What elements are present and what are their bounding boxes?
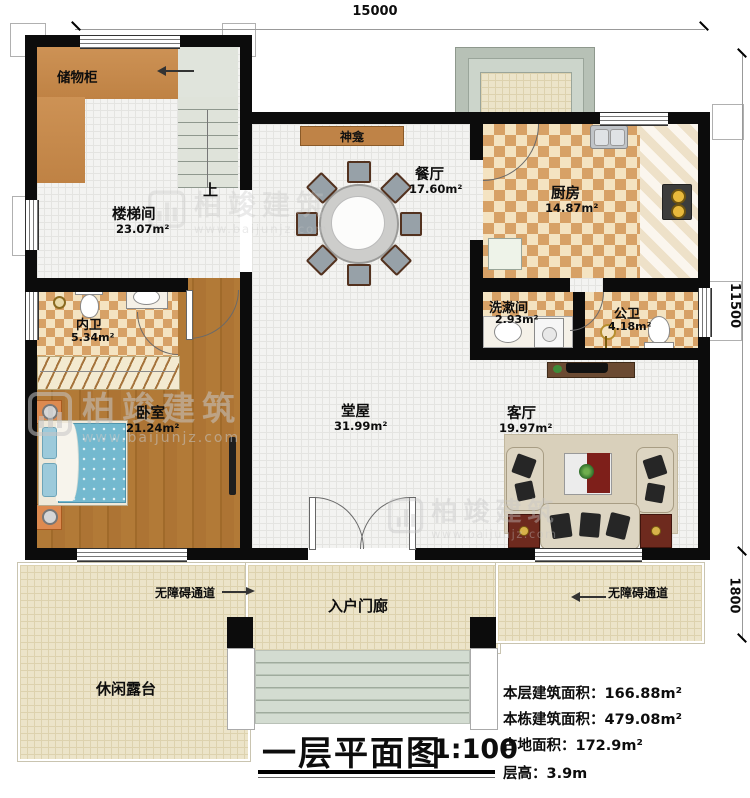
cushion <box>511 453 537 479</box>
room-area-washroom: 2.93m² <box>495 313 538 326</box>
dimension-line-right-lower <box>742 553 743 640</box>
room-area-public-bath: 4.18m² <box>608 320 651 333</box>
wall <box>470 348 710 360</box>
wall <box>25 35 37 200</box>
dining-chair <box>400 212 422 236</box>
room-area-dining: 17.60m² <box>409 182 462 196</box>
cushion <box>549 513 572 540</box>
ramp-right-arrow-icon <box>571 592 580 602</box>
room-area-kitchen: 14.87m² <box>545 201 598 215</box>
room-label-kitchen: 厨房 <box>551 182 580 203</box>
porch-pillar <box>227 617 253 648</box>
wall <box>240 112 600 124</box>
dining-chair <box>296 212 318 236</box>
pillow <box>42 463 57 497</box>
end-table <box>508 514 540 548</box>
stat-label: 层高： <box>503 766 547 782</box>
room-area-living: 19.97m² <box>499 421 552 435</box>
wall <box>187 548 308 560</box>
shrine-shelf: 神龛 <box>300 126 404 146</box>
lamp-icon <box>42 404 58 420</box>
cushion <box>605 512 630 540</box>
window <box>535 548 642 562</box>
washer-door-icon <box>542 327 557 342</box>
stat-label: 占地面积： <box>503 738 576 754</box>
ramp-right-arrow-line <box>580 596 606 598</box>
porch-pillar <box>470 617 496 648</box>
plant-icon <box>553 365 562 373</box>
wall <box>25 278 188 292</box>
room-area-bedroom: 21.24m² <box>126 421 179 435</box>
wardrobe <box>37 356 180 390</box>
dining-chair <box>347 264 371 286</box>
stair-center-line <box>207 110 208 188</box>
end-table <box>640 514 672 548</box>
wall <box>698 337 710 560</box>
wall <box>470 124 483 160</box>
stove <box>662 184 692 220</box>
cushion <box>642 454 667 479</box>
stat-label: 本层建筑面积： <box>503 686 605 702</box>
room-label-living: 客厅 <box>507 402 536 423</box>
title-underline-thin <box>258 777 495 778</box>
bedroom-door-leaf <box>186 290 193 340</box>
wall <box>240 272 252 548</box>
ramp-right-label: 无障碍通道 <box>608 584 668 601</box>
room-label-storage: 储物柜 <box>57 66 98 86</box>
room-label-bedroom: 卧室 <box>136 402 165 423</box>
wall <box>25 548 77 560</box>
kitchen-cabinet <box>488 238 522 270</box>
ramp-left-label: 无障碍通道 <box>155 584 215 601</box>
cushion <box>514 480 535 501</box>
stair-arrow-icon <box>157 66 166 76</box>
stair-treads <box>178 97 238 188</box>
stat-value: 172.9m² <box>576 738 643 754</box>
dimension-right-lower-label: 1800 <box>727 577 742 613</box>
dimension-line-top <box>75 29 705 30</box>
dimension-top-label: 15000 <box>340 4 410 19</box>
entry-door-leaf <box>409 497 416 550</box>
wall <box>470 278 570 292</box>
window <box>80 35 180 49</box>
window <box>25 200 39 250</box>
dining-chair <box>347 161 371 183</box>
stat-label: 本栋建筑面积： <box>503 712 605 728</box>
sofa <box>540 503 640 550</box>
ramp-left-arrow-line <box>222 591 246 593</box>
table-ornament-icon <box>651 526 661 536</box>
wall <box>698 112 710 288</box>
stat-floor-area: 本层建筑面积：166.88m² <box>503 682 682 703</box>
storage-cabinet <box>37 97 85 183</box>
washing-machine <box>534 318 564 348</box>
entry-steps <box>255 650 470 724</box>
plan-title: 一层平面图 <box>262 726 442 775</box>
sink-basin <box>594 129 609 146</box>
shower-head-icon <box>53 296 66 309</box>
terrace-area <box>18 563 250 761</box>
floor-plan: 神龛 <box>0 0 750 798</box>
stat-floor-height: 层高：3.9m <box>503 762 587 783</box>
room-label-dining: 餐厅 <box>415 163 444 184</box>
cushion <box>645 483 666 504</box>
wall <box>25 340 37 560</box>
title-underline <box>258 770 495 774</box>
dining-table-top <box>331 196 385 250</box>
accessible-ramp-right-area <box>496 563 704 643</box>
armchair <box>506 447 544 511</box>
stair-landing <box>178 47 238 99</box>
entry-door-leaf <box>309 497 316 550</box>
plant-icon <box>579 464 594 479</box>
cushion <box>579 512 601 538</box>
stairs-up-label: 上 <box>203 179 218 200</box>
bedroom-tv <box>229 437 236 495</box>
porch-pillar-base <box>227 648 255 730</box>
window-sill <box>712 104 744 140</box>
wall <box>470 240 483 278</box>
pillow <box>42 427 57 459</box>
dimension-line-right <box>742 55 743 553</box>
stair-arrow-line <box>166 70 194 72</box>
stat-building-area: 本栋建筑面积：479.08m² <box>503 708 682 729</box>
room-area-private-bath: 5.34m² <box>71 331 114 344</box>
porch-pillar-base <box>470 648 498 730</box>
stat-value: 479.08m² <box>605 712 682 728</box>
wall <box>415 548 535 560</box>
porch-label: 入户门廊 <box>328 595 388 616</box>
window <box>25 292 39 340</box>
shrine-label: 神龛 <box>340 128 364 145</box>
window <box>600 112 668 126</box>
bed-sheet-fold <box>56 423 79 501</box>
armchair <box>636 447 674 513</box>
burner-icon <box>671 189 686 204</box>
wall <box>642 548 710 560</box>
sink-basin <box>610 129 625 146</box>
stat-value: 3.9m <box>547 766 588 782</box>
dimension-right-label: 11500 <box>727 283 742 328</box>
lamp-icon <box>42 509 58 525</box>
window <box>698 288 712 337</box>
tv-icon <box>566 363 608 373</box>
table-ornament-icon <box>519 526 529 536</box>
wardrobe-rod <box>40 371 175 372</box>
wall <box>603 278 710 292</box>
room-area-hall: 31.99m² <box>334 419 387 433</box>
room-label-hall: 堂屋 <box>341 400 370 421</box>
terrace-label: 休闲露台 <box>96 678 156 699</box>
window <box>77 548 187 562</box>
room-area-stairwell: 23.07m² <box>116 222 169 236</box>
ramp-left-arrow-icon <box>246 587 255 595</box>
burner-icon <box>671 204 686 219</box>
stat-value: 166.88m² <box>605 686 682 702</box>
room-label-stairwell: 楼梯间 <box>112 203 156 224</box>
kitchen-sink <box>590 125 628 149</box>
stat-footprint-area: 占地面积：172.9m² <box>503 734 643 755</box>
